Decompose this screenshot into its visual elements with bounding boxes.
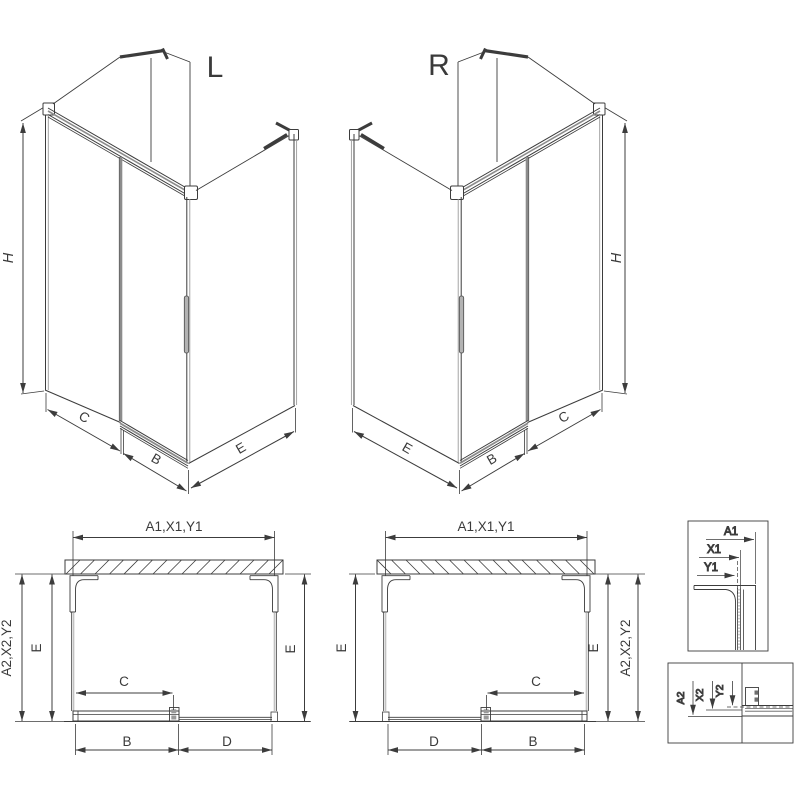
detail-rail-dim-x2: X2 [694,688,706,701]
iso-right-dim-b: B [484,450,499,467]
iso-left-dim-c: C [76,408,92,426]
plan-view-center: A1,X1,Y1 E E A2,X2,Y2 C D B [334,519,645,755]
plan-center-dim-top: A1,X1,Y1 [457,519,514,534]
plan-view-left: A1,X1,Y1 A2,X2,Y2 E E C B D [0,519,311,755]
shower-enclosure-technical-drawing: L H C B E R H E B C A1,X1,Y1 A2,X2,Y2 E … [0,0,800,800]
plan-center-dim-right-inner: E [586,643,601,652]
drawing-canvas: L H C B E R H E B C A1,X1,Y1 A2,X2,Y2 E … [0,0,800,800]
detail-profile-dim-a1: A1 [724,526,738,538]
plan-left-dim-left-inner: E [29,643,44,652]
plan-left-dim-left-outer: A2,X2,Y2 [0,619,14,676]
plan-left-dim-top: A1,X1,Y1 [145,519,202,534]
plan-center-dim-b: B [528,734,537,749]
iso-left-dim-h: H [1,252,17,263]
iso-left-dim-e: E [233,439,248,456]
plan-left-dim-d: D [222,734,232,749]
plan-center-dim-d: D [429,734,439,749]
detail-profile-dim-y1: Y1 [704,562,718,574]
iso-right-dim-h: H [609,252,625,263]
iso-view-right: R H E B C [350,49,628,495]
plan-center-dim-left: E [334,643,349,652]
iso-left-view-label: L [207,51,224,84]
detail-view-floor-rail: A2 X2 Y2 [668,663,793,743]
iso-right-dim-c: C [556,408,572,426]
detail-profile-dim-x1: X1 [707,544,721,556]
iso-view-left: L H C B E [1,49,299,495]
plan-left-dim-b: B [122,734,131,749]
plan-left-dim-right: E [283,644,298,653]
plan-center-dim-c: C [531,674,541,689]
plan-center-dim-right-outer: A2,X2,Y2 [618,619,633,676]
plan-left-dim-c: C [119,674,129,689]
detail-rail-dim-y2: Y2 [714,684,726,697]
iso-left-dim-b: B [149,450,164,467]
iso-right-dim-e: E [400,439,415,456]
iso-right-view-label: R [428,49,450,82]
detail-rail-dim-a2: A2 [675,691,687,704]
detail-view-wall-profile: A1 X1 Y1 [688,521,768,651]
